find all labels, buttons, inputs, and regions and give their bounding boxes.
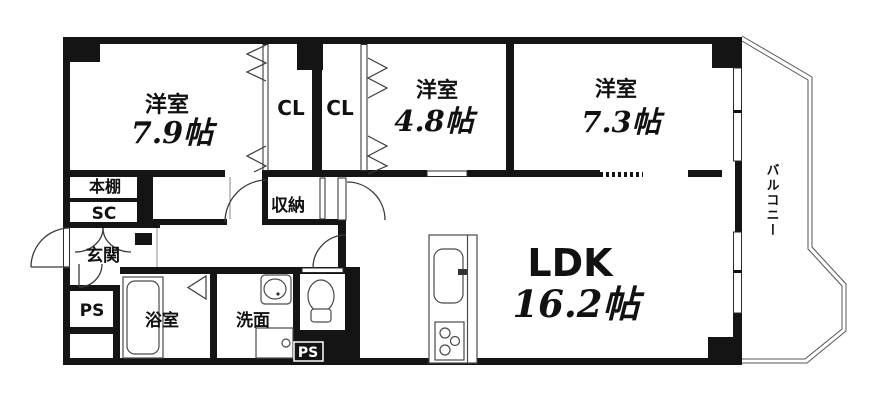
entrance-door-line xyxy=(64,228,70,268)
bookshelf-label: 本棚 xyxy=(89,177,121,196)
kitchen-faucet xyxy=(458,269,467,275)
toilet-bowl xyxy=(308,280,334,312)
sliding-door-west2 xyxy=(427,171,467,177)
western3-size: 7.3帖 xyxy=(581,105,665,139)
western3-label: 洋室 xyxy=(595,77,637,101)
western1-size: 7.9帖 xyxy=(131,116,218,151)
closet2-door-line xyxy=(361,45,367,171)
bathroom-label: 浴室 xyxy=(145,310,179,331)
window-west3 xyxy=(734,68,742,161)
shoe-closet-label: SC xyxy=(92,204,117,224)
washroom-label: 洗面 xyxy=(236,310,270,331)
pipe-space-bottom-label: PS xyxy=(298,345,318,361)
ldk-label: LDK xyxy=(527,241,614,285)
pipe-space-left-label: PS xyxy=(80,301,105,321)
closet2-label: CL xyxy=(326,96,354,120)
closet1-label: CL xyxy=(277,96,305,120)
stove-burner xyxy=(451,337,460,346)
washbasin-drain xyxy=(276,292,279,295)
stove-burner xyxy=(440,345,450,355)
storage-label: 収納 xyxy=(271,195,305,216)
floor-plan-drawing: 洋室 7.9帖 CL CL 洋室 4.8帖 洋室 7.3帖 LDK 16.2帖 … xyxy=(0,0,877,415)
ldk-size: 16.2帖 xyxy=(512,282,645,326)
western2-label: 洋室 xyxy=(416,78,458,102)
balcony-label: バルコニー xyxy=(764,163,780,238)
hall-ldk-door-line xyxy=(338,178,346,220)
western2-size: 4.8帖 xyxy=(394,104,478,138)
laundry-drain xyxy=(282,339,290,347)
western1-label: 洋室 xyxy=(145,92,189,118)
window-mullion xyxy=(733,270,742,273)
window-mullion xyxy=(733,110,742,113)
toilet-door xyxy=(302,268,343,273)
entrance-label: 玄関 xyxy=(86,245,120,266)
kitchen-sink xyxy=(434,249,463,303)
washbasin-bowl xyxy=(264,279,286,299)
storage-door-line xyxy=(320,178,325,219)
stove-burner xyxy=(440,328,450,338)
floor-plan: 洋室 7.9帖 CL CL 洋室 4.8帖 洋室 7.3帖 LDK 16.2帖 … xyxy=(0,0,877,415)
toilet-base xyxy=(311,309,331,322)
